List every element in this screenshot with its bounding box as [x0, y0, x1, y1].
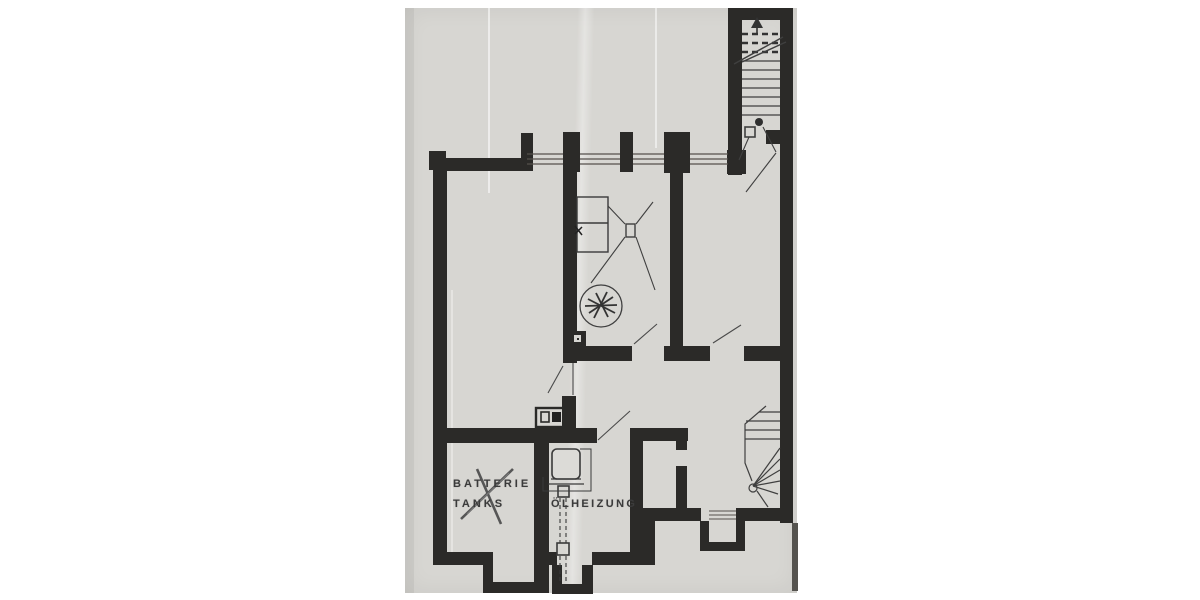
boiler-icon — [543, 449, 591, 491]
stair-direction-arrow-icon — [751, 17, 763, 35]
plan-linework — [0, 0, 1200, 600]
screenshot-root: BATTERIE TANKS ÖLHEIZUNG — [0, 0, 1200, 600]
pointer-mark — [575, 226, 582, 235]
winder-staircase-icon — [745, 406, 780, 507]
room-label-batterie-line2: TANKS — [453, 498, 505, 510]
stairwell-light-icon — [739, 118, 776, 192]
meter-boxes-icon — [536, 408, 564, 427]
room-label-oelheizung: ÖLHEIZUNG — [551, 498, 637, 510]
drain-circle-icon — [580, 285, 622, 327]
ceiling-light-icon — [591, 202, 655, 290]
upper-staircase-icon — [734, 34, 786, 115]
basement-window-icon — [527, 154, 728, 164]
basement-window-icon — [709, 511, 736, 519]
door-swing-icon — [548, 324, 741, 440]
table-symbol — [577, 197, 608, 252]
room-label-batterie-line1: BATTERIE — [453, 478, 531, 490]
